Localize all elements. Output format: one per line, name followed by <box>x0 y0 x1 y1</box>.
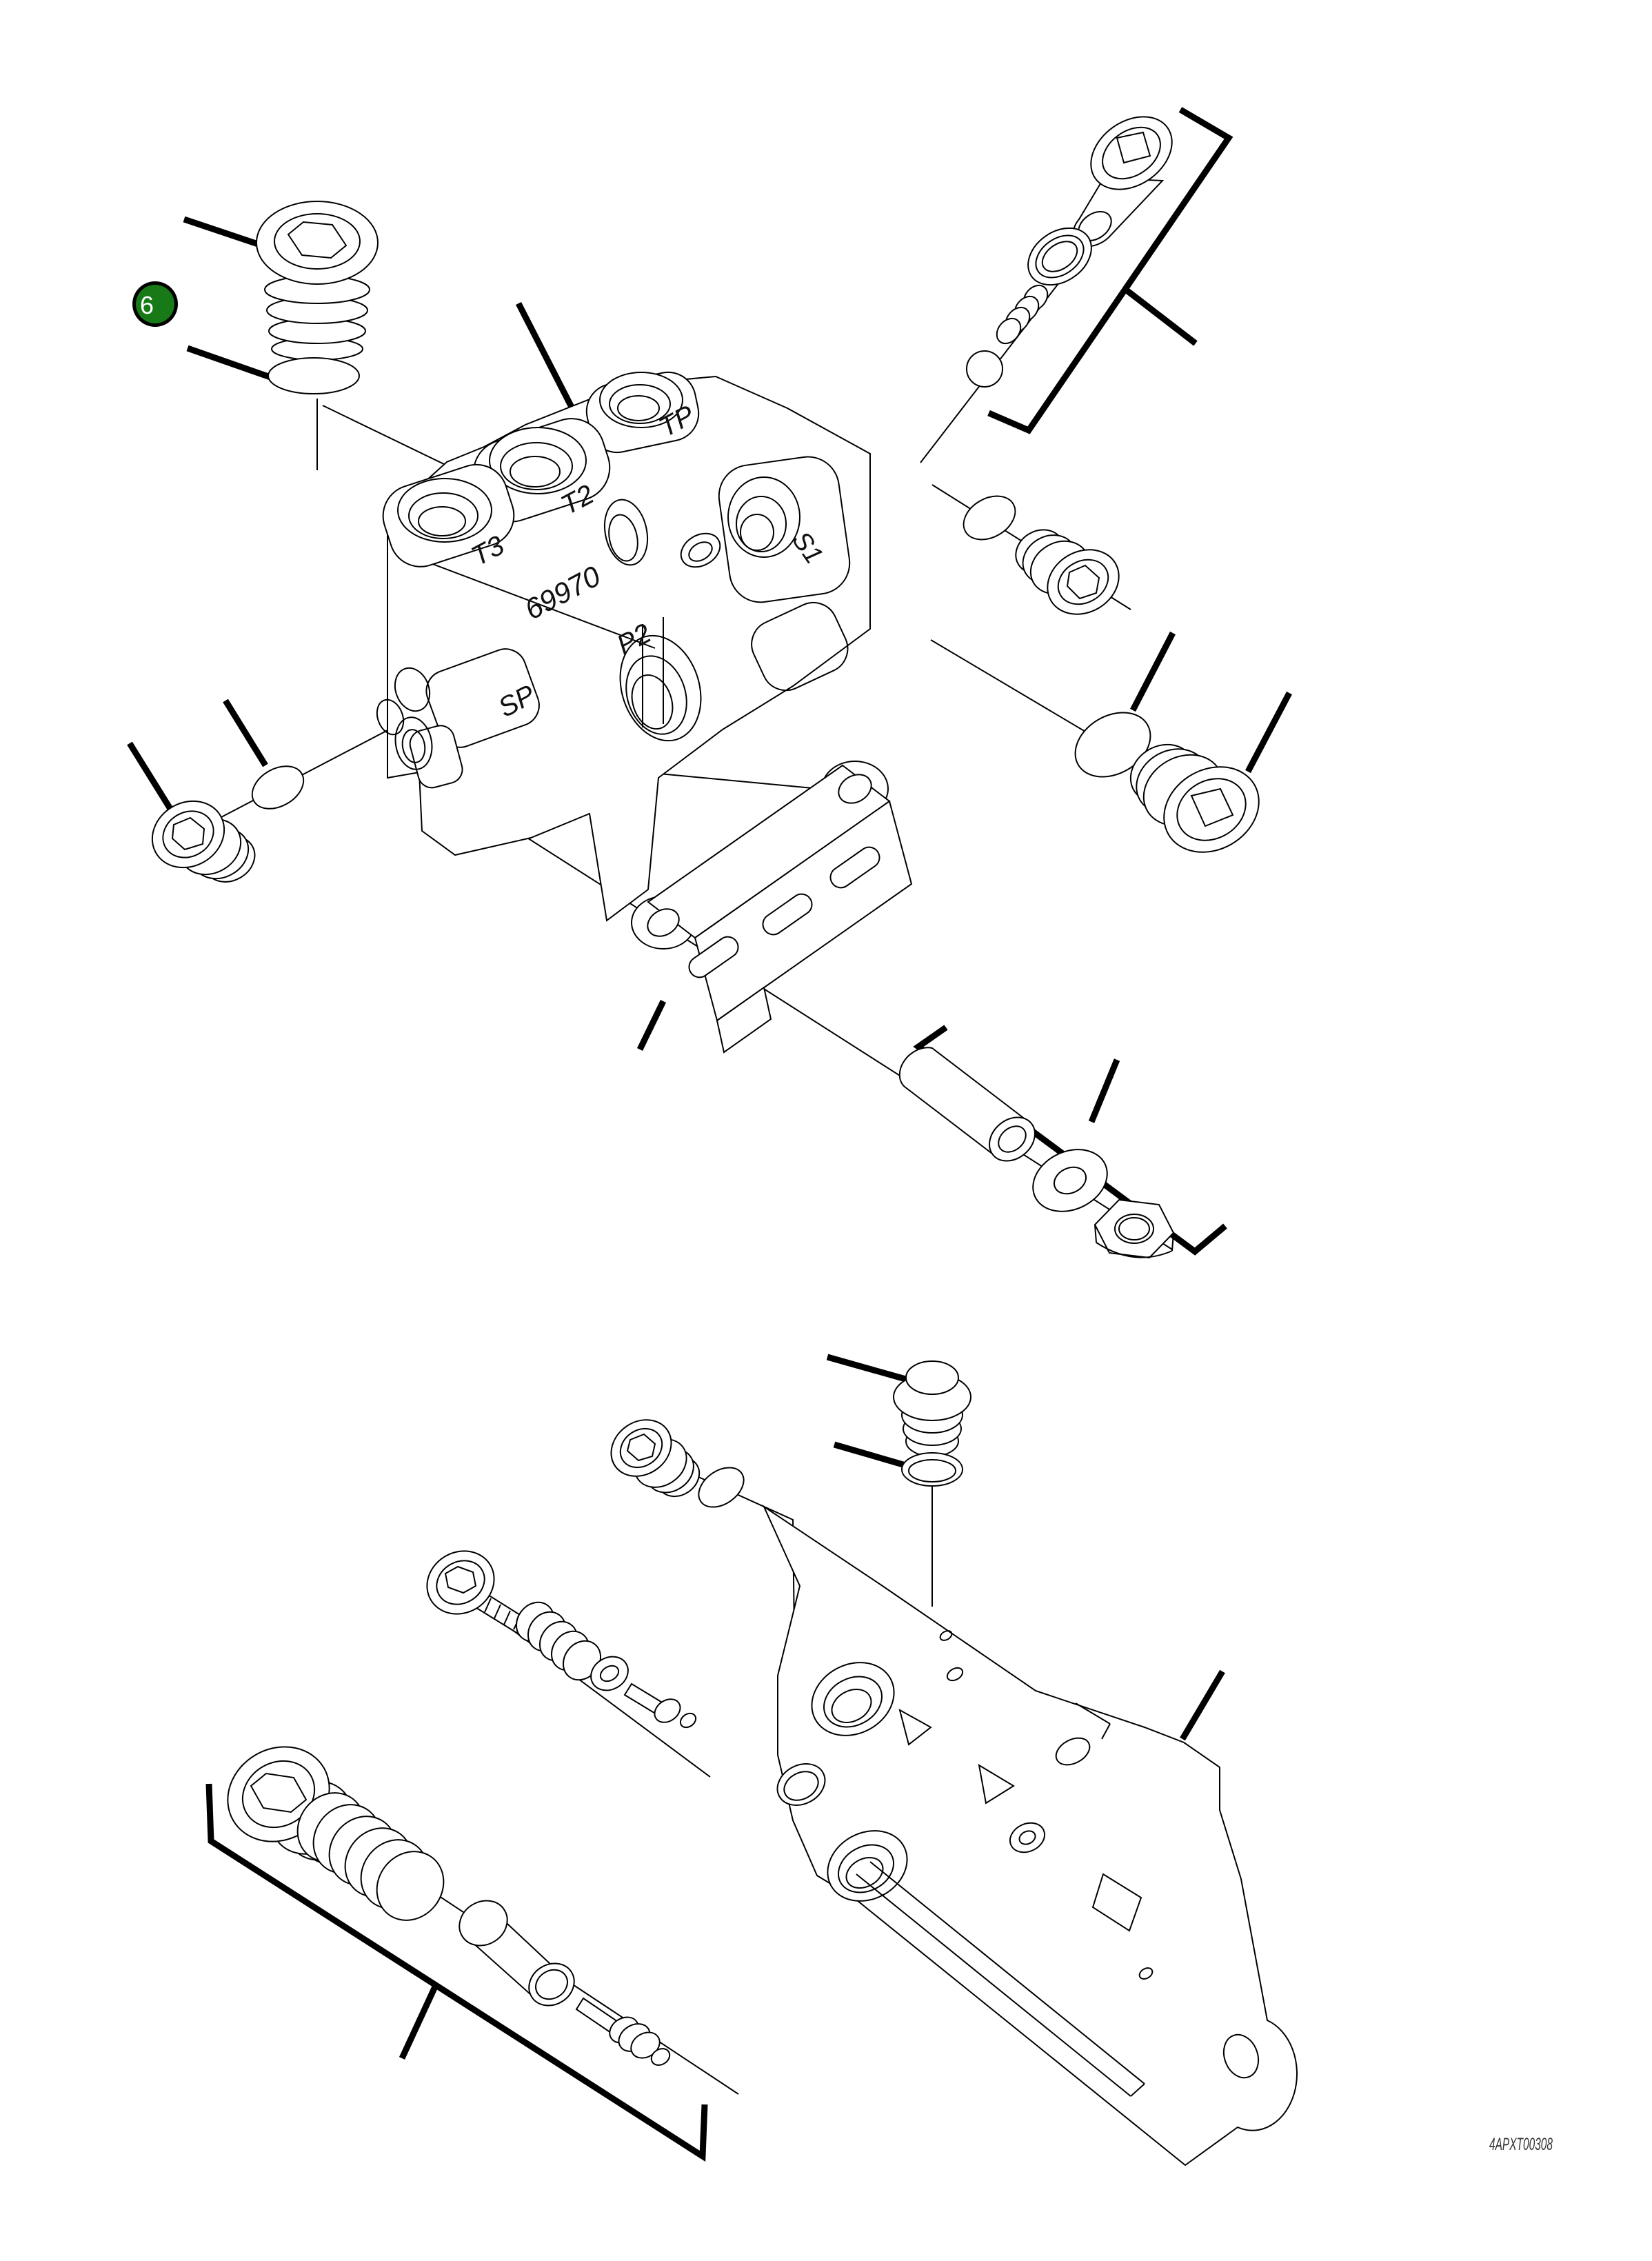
spool-tip <box>576 1998 673 2069</box>
exploded-view-drawing: T3 T2 TP SP P2 S1 69970 <box>0 0 1652 2261</box>
o-ring-outline <box>692 1460 752 1516</box>
leader-line <box>1248 693 1289 772</box>
valve-body-bottom <box>764 1507 1297 2165</box>
hex-socket-plug-small-right <box>1008 521 1131 627</box>
stem-tip <box>678 1711 698 1731</box>
leader-line <box>188 348 272 378</box>
leader-line <box>640 1001 663 1049</box>
leader-line <box>827 1357 908 1380</box>
drawing-code: 4APXT00308 <box>1489 2135 1553 2154</box>
check-ball <box>967 351 1003 387</box>
o-ring-outline <box>245 758 311 818</box>
o-ring-outline <box>956 488 1023 548</box>
o-ring-large <box>268 358 359 394</box>
callout-number: 6 <box>140 291 154 319</box>
o-ring-bottom <box>902 1453 963 1486</box>
o-ring-outline <box>268 358 359 394</box>
port-boss-s1 <box>715 453 854 606</box>
hex-socket-plug-large-right <box>1120 733 1274 869</box>
leader-line <box>1182 1671 1222 1739</box>
o-ring-bottom-left <box>692 1460 752 1516</box>
o-ring-small-left <box>245 758 311 818</box>
hex-socket-plug-large <box>256 201 378 360</box>
spacer-pin <box>900 1047 1044 1169</box>
flanged-plug-bottom <box>894 1361 971 1456</box>
leader-line <box>1127 290 1196 343</box>
valve-stem <box>625 1684 698 1730</box>
leader-line <box>225 701 265 765</box>
hex-socket-plug-bottom-left <box>601 1408 707 1504</box>
leader-line <box>518 303 578 419</box>
leader-line <box>130 743 170 809</box>
cap-screw <box>416 1539 531 1636</box>
mounting-bracket <box>632 761 911 1052</box>
ball-outline <box>967 351 1003 387</box>
poppet <box>451 1892 582 2014</box>
hex-socket-plug-left <box>140 788 263 891</box>
relief-spring <box>992 281 1053 348</box>
flat-washer <box>1023 1138 1117 1223</box>
parts-diagram-page: T3 T2 TP SP P2 S1 69970 <box>0 0 1652 2261</box>
callout-6[interactable]: 6 <box>132 281 178 327</box>
group-bracket-fasteners <box>918 1027 1225 1252</box>
main-spring <box>284 1780 458 1934</box>
axis-line <box>323 405 448 466</box>
leader-line <box>1091 1060 1117 1122</box>
plug-cap <box>906 1361 958 1394</box>
o-ring-small-right <box>956 488 1023 548</box>
body-outline <box>764 1507 1297 2165</box>
leader-line <box>1133 633 1173 710</box>
leader-line <box>402 1985 436 2058</box>
o-ring-outline <box>902 1453 963 1486</box>
